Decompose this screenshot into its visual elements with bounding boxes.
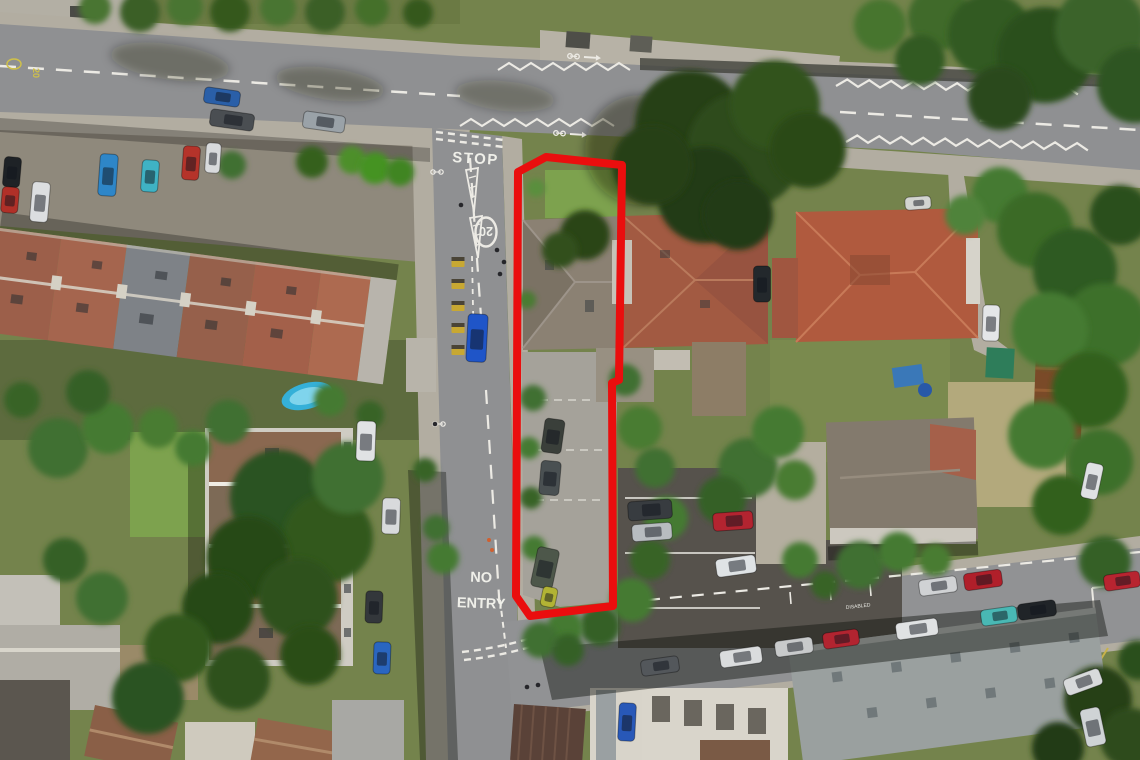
motorcycle-bay bbox=[452, 301, 465, 311]
green-shed bbox=[985, 347, 1015, 378]
tree bbox=[518, 437, 540, 459]
tree bbox=[520, 385, 546, 411]
tree bbox=[527, 179, 545, 197]
tree bbox=[258, 558, 338, 638]
tree bbox=[542, 232, 578, 268]
corner-house bbox=[826, 417, 978, 544]
car bbox=[373, 642, 391, 675]
aerial-photo: STOP 20 NO ENTRY 20 DISABLED bbox=[0, 0, 1140, 760]
car bbox=[905, 196, 932, 211]
garden-pool-round bbox=[918, 383, 932, 397]
tree bbox=[359, 152, 391, 184]
tree bbox=[770, 112, 846, 188]
car bbox=[204, 143, 221, 174]
tree bbox=[630, 540, 670, 580]
car bbox=[2, 156, 22, 187]
neighbour-wing bbox=[772, 258, 798, 338]
pedestrian bbox=[536, 683, 541, 688]
ridge-line bbox=[0, 648, 120, 652]
road-marking-stop: STOP bbox=[452, 149, 500, 169]
tree bbox=[552, 634, 584, 666]
pedestrian bbox=[495, 248, 500, 253]
tree bbox=[945, 195, 985, 235]
car bbox=[356, 421, 376, 462]
tree bbox=[386, 158, 414, 186]
tree bbox=[836, 541, 884, 589]
traffic-cone bbox=[487, 538, 491, 542]
pedestrian bbox=[502, 260, 507, 265]
aerial-photo-stage: STOP 20 NO ENTRY 20 DISABLED bbox=[0, 0, 1140, 760]
car bbox=[98, 153, 119, 196]
car bbox=[712, 511, 753, 532]
grey-roof bbox=[332, 700, 404, 760]
tree bbox=[782, 542, 818, 578]
car bbox=[541, 418, 566, 454]
car bbox=[618, 703, 637, 742]
pedestrian bbox=[498, 272, 503, 277]
neighbour-house bbox=[772, 208, 980, 342]
tree bbox=[775, 460, 815, 500]
traffic-cone bbox=[490, 548, 494, 552]
pedestrian bbox=[525, 685, 530, 690]
tree bbox=[895, 35, 945, 85]
white-house-roof-strip bbox=[596, 690, 616, 760]
road-marking-speed-limit: 20 bbox=[479, 224, 493, 238]
tree bbox=[314, 384, 346, 416]
motorcycle-bay bbox=[452, 323, 465, 333]
tree bbox=[423, 515, 449, 541]
neighbour-courtyard bbox=[850, 255, 890, 285]
car bbox=[365, 591, 383, 624]
tree bbox=[280, 625, 340, 685]
pedestrian bbox=[459, 203, 464, 208]
tree bbox=[138, 408, 178, 448]
neighbour-white-wall bbox=[966, 238, 980, 304]
road-marking-no-entry-2: ENTRY bbox=[457, 595, 506, 613]
tree bbox=[752, 406, 804, 458]
bus-stop-bins bbox=[629, 35, 652, 52]
road-marking-speed-yellow: 20 bbox=[31, 68, 41, 78]
garden-pool bbox=[892, 364, 924, 388]
rear-yard bbox=[654, 350, 690, 370]
tree bbox=[811, 571, 839, 599]
motorcycle-bay bbox=[452, 279, 465, 289]
tree bbox=[968, 66, 1032, 130]
car bbox=[754, 266, 771, 302]
tree bbox=[218, 151, 246, 179]
car bbox=[140, 159, 159, 192]
tree bbox=[66, 370, 110, 414]
car bbox=[381, 498, 400, 535]
tree bbox=[1008, 401, 1076, 469]
motorcycle-bay bbox=[452, 345, 465, 355]
tree bbox=[206, 400, 250, 444]
car bbox=[29, 181, 50, 222]
tree bbox=[206, 646, 270, 710]
road-marking-no-entry-1: NO bbox=[470, 570, 492, 587]
tree bbox=[703, 180, 773, 250]
car bbox=[466, 314, 488, 363]
tree bbox=[112, 662, 184, 734]
tree bbox=[635, 448, 675, 488]
tree bbox=[854, 0, 906, 51]
car bbox=[982, 305, 1000, 342]
dark-brown-roof-house bbox=[510, 704, 586, 760]
car bbox=[631, 522, 672, 542]
victorian-roof-brown bbox=[700, 740, 770, 760]
light-roof bbox=[185, 722, 255, 760]
tree bbox=[28, 418, 88, 478]
tree bbox=[296, 146, 328, 178]
car bbox=[0, 186, 19, 213]
rear-wing bbox=[692, 342, 746, 416]
tree bbox=[413, 458, 437, 482]
tree bbox=[618, 406, 662, 450]
tree bbox=[43, 538, 87, 582]
garages bbox=[406, 338, 436, 392]
motorcycle-bay bbox=[452, 257, 465, 267]
car bbox=[181, 145, 200, 180]
car bbox=[627, 499, 672, 521]
pedestrian bbox=[433, 422, 438, 427]
dark-roof bbox=[0, 680, 70, 760]
tree bbox=[919, 544, 951, 576]
tree bbox=[878, 532, 918, 572]
tree bbox=[76, 572, 128, 624]
car bbox=[539, 460, 562, 496]
bus-shelter bbox=[565, 31, 590, 49]
tree bbox=[4, 382, 40, 418]
tree bbox=[175, 430, 211, 466]
tree bbox=[427, 542, 459, 574]
